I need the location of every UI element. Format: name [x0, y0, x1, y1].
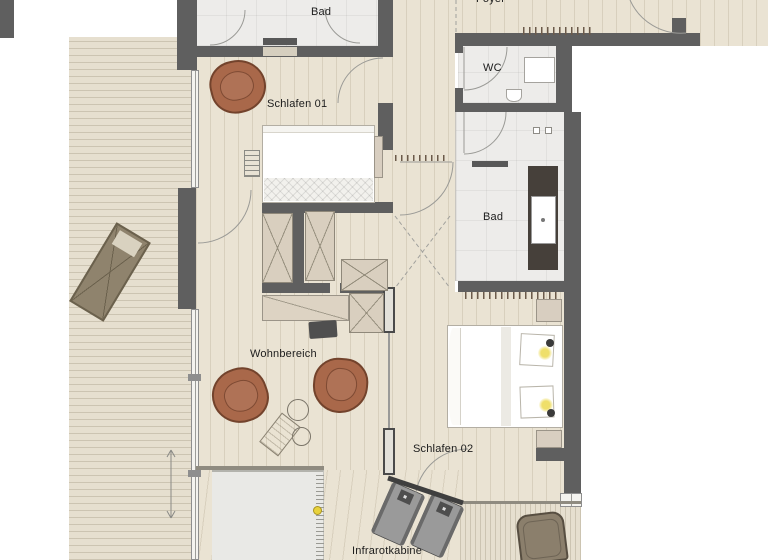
door-arc	[630, 0, 686, 33]
door-arc	[210, 10, 245, 45]
diagonal-wall	[388, 478, 463, 503]
door-arc	[338, 58, 383, 103]
room-label-foyer: Foyer	[476, 0, 505, 5]
door-arc	[400, 162, 453, 215]
door-arc	[464, 112, 506, 154]
room-label-bad-right: Bad	[483, 211, 503, 223]
door-arc	[198, 190, 251, 243]
floor-plan: Bad Foyer WC Schlafen 01 Bad Wohnbereich…	[0, 0, 768, 560]
room-label-bad-top: Bad	[311, 6, 331, 18]
room-label-schlafen01: Schlafen 01	[267, 98, 327, 110]
room-label-wc: WC	[483, 62, 502, 74]
sliding-direction-arrow	[167, 450, 175, 518]
room-label-infrarotkabine: Infrarotkabine	[352, 545, 422, 557]
room-label-schlafen02: Schlafen 02	[413, 443, 473, 455]
plan-linework	[0, 0, 768, 560]
room-label-wohnbereich: Wohnbereich	[250, 348, 317, 360]
